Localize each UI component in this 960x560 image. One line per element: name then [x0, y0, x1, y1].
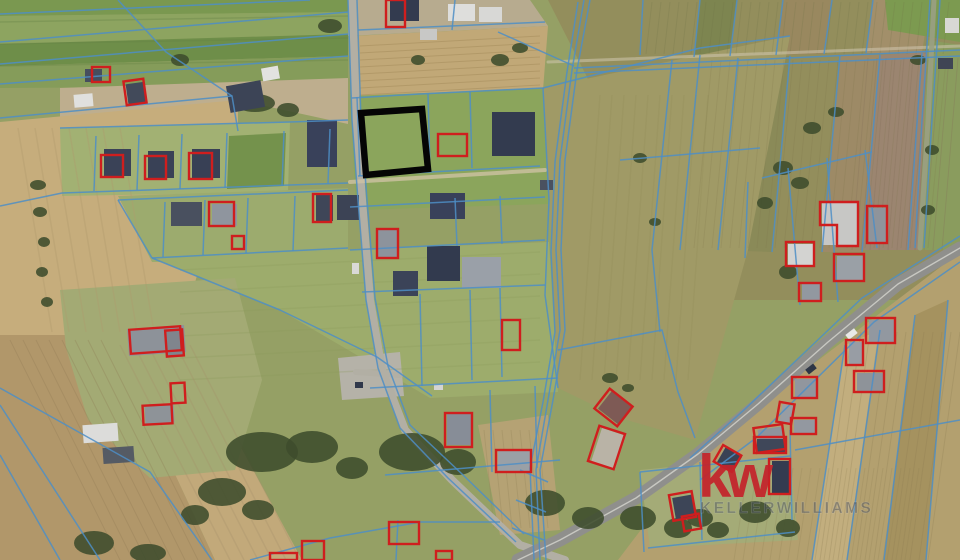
building-roof — [772, 461, 790, 494]
building-roof — [337, 195, 359, 220]
tree — [925, 145, 939, 155]
tree — [411, 55, 425, 65]
tree — [602, 373, 618, 383]
tree — [242, 500, 274, 520]
building-roof — [73, 93, 93, 108]
tree — [620, 506, 656, 530]
tree — [803, 122, 821, 134]
building-roof — [82, 423, 118, 443]
tree — [277, 103, 299, 117]
building-roof — [352, 263, 359, 274]
building-roof — [837, 256, 864, 281]
building-roof — [393, 271, 418, 296]
tree — [828, 107, 844, 117]
road — [356, 372, 400, 375]
building-roof — [420, 29, 437, 40]
field-region — [227, 133, 286, 189]
aerial-map: kw KELLERWILLIAMS — [0, 0, 960, 560]
tree — [38, 237, 50, 247]
tree — [622, 384, 634, 392]
building-roof — [857, 373, 884, 392]
building-roof — [448, 4, 475, 21]
building-roof — [869, 208, 887, 243]
building-roof — [540, 180, 553, 190]
building-roof — [945, 18, 959, 33]
building-roof — [492, 112, 535, 156]
tree — [707, 522, 729, 538]
kw-wordmark-text: KELLERWILLIAMS — [700, 500, 873, 517]
listing-image: kw KELLERWILLIAMS — [0, 0, 960, 560]
tree — [318, 19, 342, 33]
tree — [226, 432, 298, 472]
building-roof — [355, 382, 363, 388]
building-roof — [498, 451, 531, 471]
tree — [910, 55, 926, 65]
tree — [41, 297, 53, 307]
building-roof — [794, 420, 817, 434]
building-roof — [307, 120, 337, 167]
building-roof — [938, 58, 953, 69]
tree — [491, 54, 509, 66]
building-roof — [802, 284, 821, 300]
tree — [33, 207, 47, 217]
tree — [757, 197, 773, 209]
tree — [921, 205, 935, 215]
tree — [791, 177, 809, 189]
building-roof — [462, 257, 501, 288]
building-roof — [479, 7, 502, 22]
building-roof — [378, 230, 399, 257]
building-roof — [427, 246, 460, 281]
building-roof — [788, 244, 813, 265]
tree — [36, 267, 48, 277]
building-roof — [447, 414, 472, 445]
tree — [572, 507, 604, 529]
building-roof — [104, 149, 131, 176]
tree — [30, 180, 46, 190]
building-roof — [171, 202, 202, 226]
building-roof — [849, 342, 864, 365]
tree — [198, 478, 246, 506]
tree — [336, 457, 368, 479]
tree — [171, 54, 189, 66]
building-roof — [430, 193, 465, 219]
building-roof — [145, 404, 175, 423]
tree — [286, 431, 338, 463]
